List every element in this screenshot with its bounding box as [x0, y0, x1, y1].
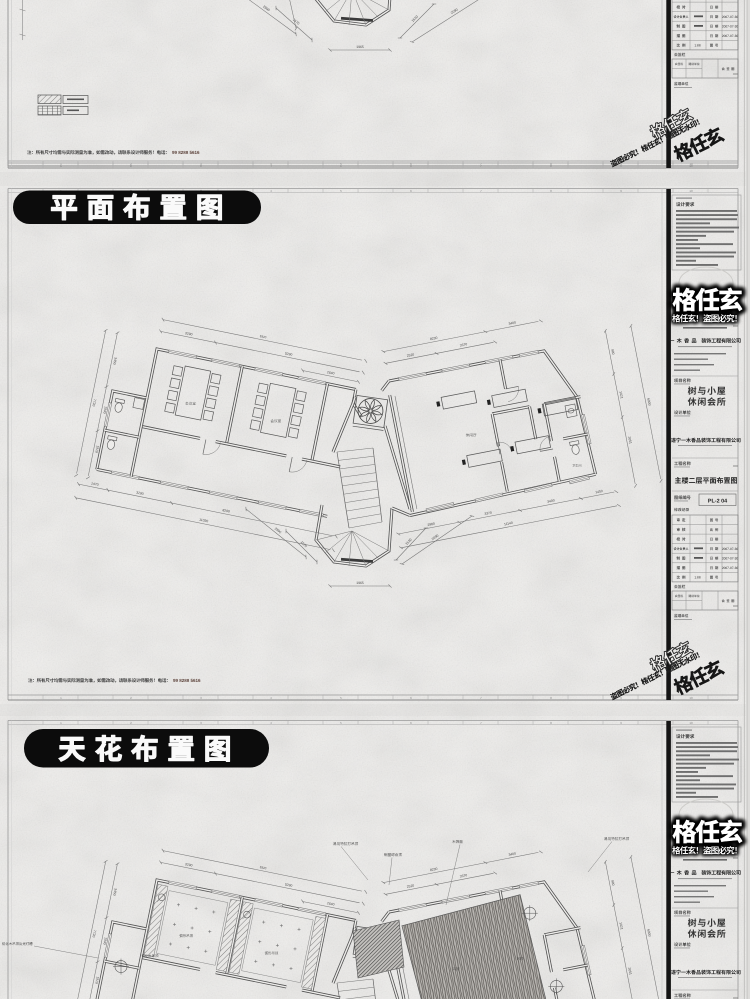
svg-text:99 8288 5616: 99 8288 5616 [172, 150, 200, 155]
svg-text:1965: 1965 [356, 45, 364, 49]
svg-text:99 8288 5616: 99 8288 5616 [173, 678, 201, 683]
